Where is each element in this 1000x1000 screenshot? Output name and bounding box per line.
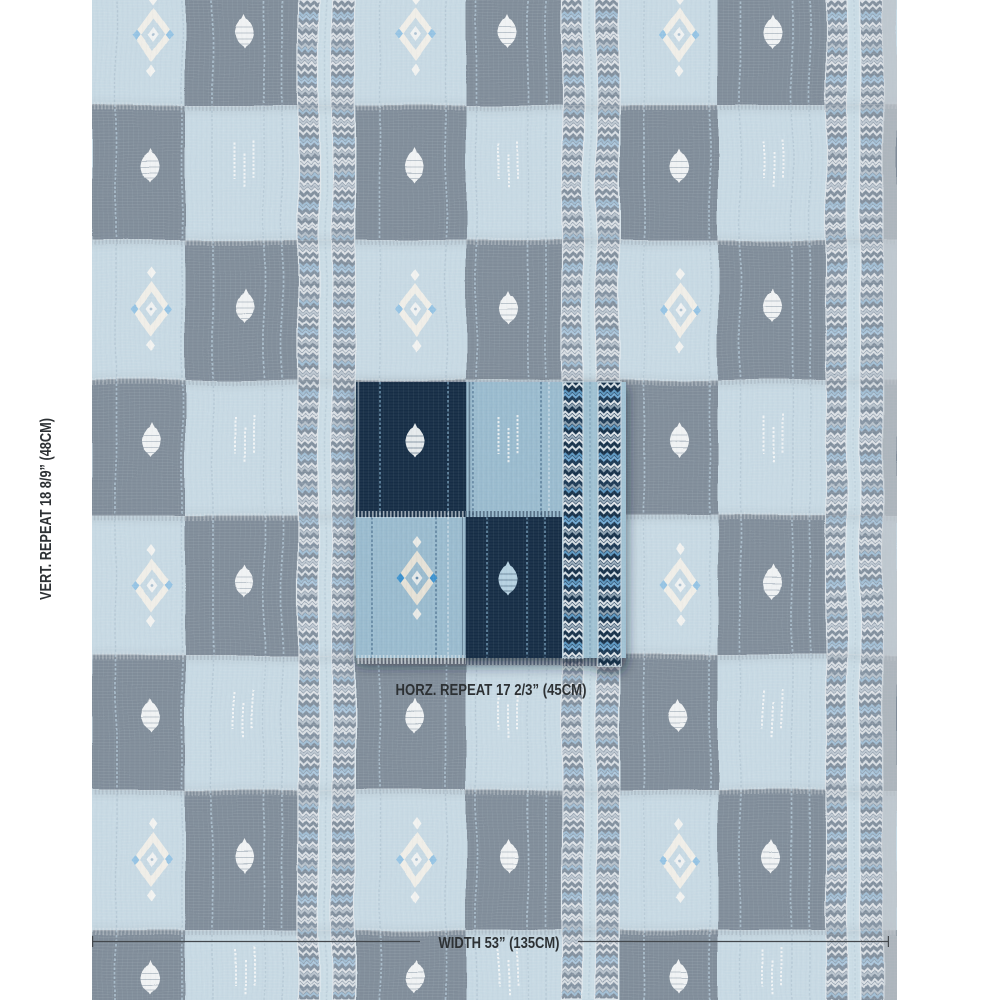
svg-text:VERT. REPEAT 18 8/9” (48CM): VERT. REPEAT 18 8/9” (48CM) (38, 418, 55, 600)
svg-text:WIDTH 53” (135CM): WIDTH 53” (135CM) (439, 935, 560, 952)
svg-text:HORZ. REPEAT 17 2/3” (45CM): HORZ. REPEAT 17 2/3” (45CM) (396, 682, 587, 699)
